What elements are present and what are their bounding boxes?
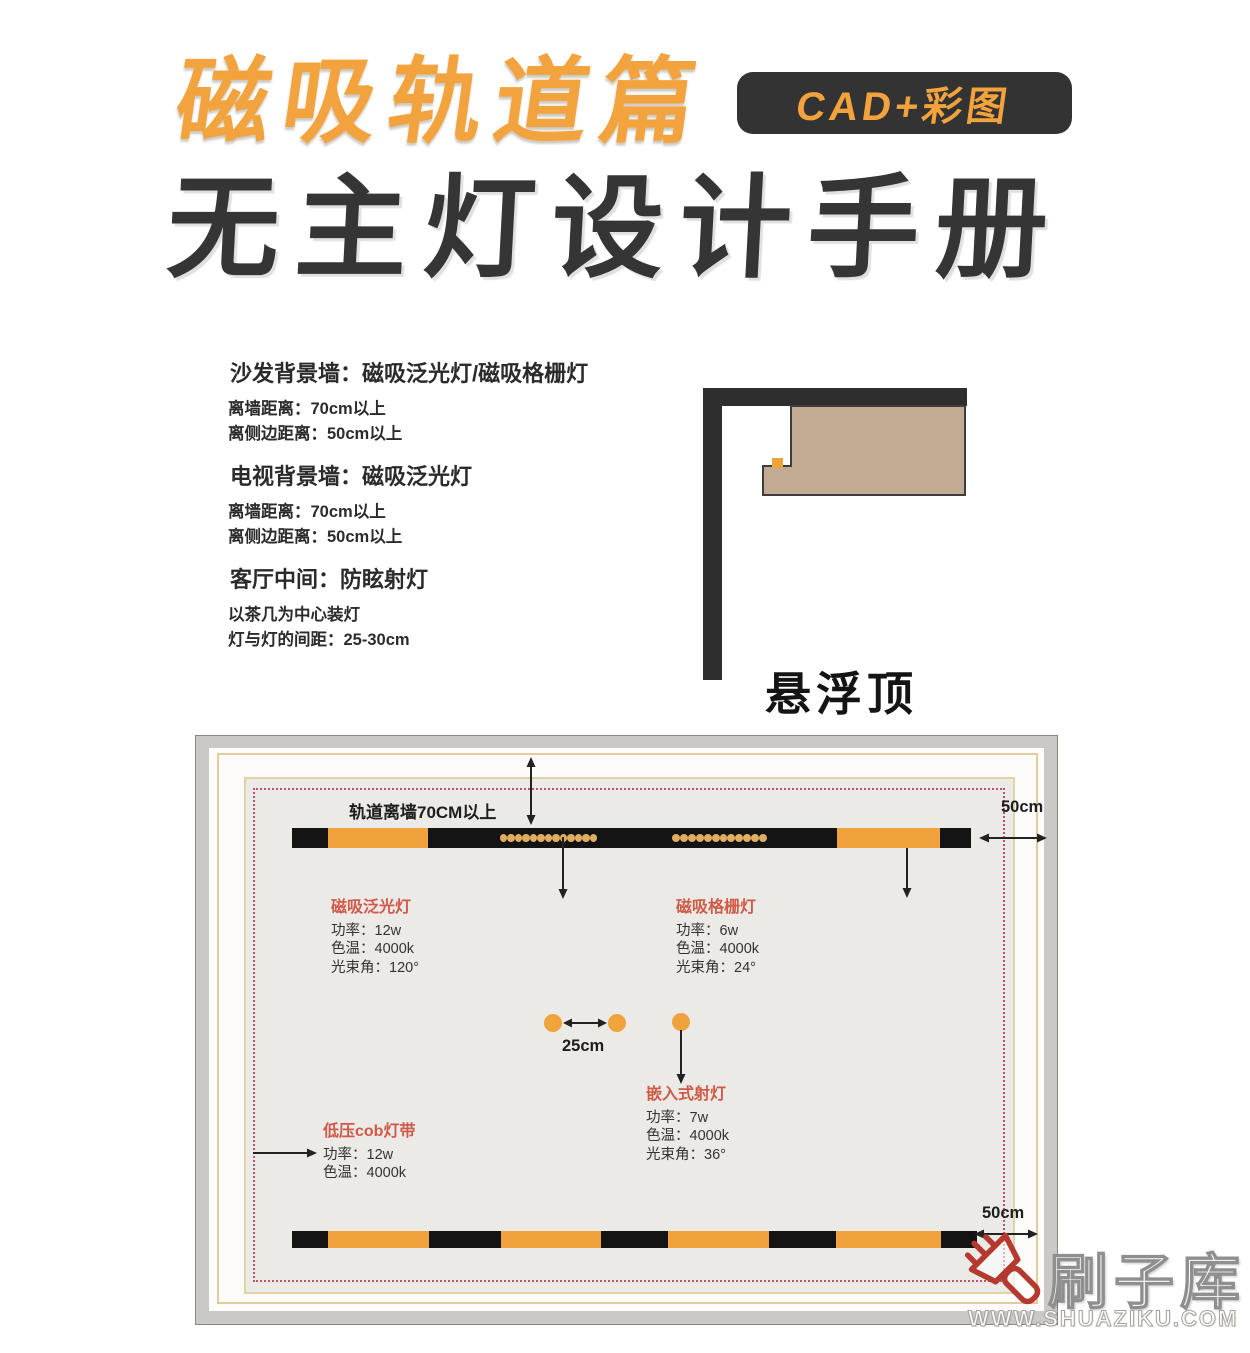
track-light-marker xyxy=(772,458,783,468)
cob-spec: 低压cob灯带 功率：12w 色温：4000k xyxy=(323,1123,415,1183)
track-segment-black xyxy=(428,828,837,848)
grille-dot xyxy=(515,834,522,842)
recessed-pointer-arrow xyxy=(674,1030,688,1084)
grille-dot xyxy=(575,834,582,842)
floodlight-spec-title: 磁吸泛光灯 xyxy=(331,899,419,918)
spec-line: 光束角：24° xyxy=(676,959,759,978)
grille-dot xyxy=(696,834,704,842)
track-segment-black xyxy=(429,1231,501,1248)
track-segment-black xyxy=(292,828,328,848)
grille-dot xyxy=(500,834,507,842)
track-segment-black xyxy=(769,1231,836,1248)
note-title: 客厅中间：防眩射灯 xyxy=(230,562,428,594)
suspended-ceiling-shape xyxy=(755,400,975,510)
spec-line: 色温：4000k xyxy=(646,1127,729,1146)
note-line: 离侧边距离：50cm以上 xyxy=(228,525,472,550)
side-distance-top-arrow xyxy=(979,830,1047,846)
grille-dot xyxy=(680,834,688,842)
note-title: 沙发背景墙：磁吸泛光灯/磁吸格栅灯 xyxy=(230,356,588,388)
grille-light-dots xyxy=(497,828,600,848)
watermark-url: WWW.SHUAZIKU.COM xyxy=(968,1306,1238,1332)
recessed-spec: 嵌入式射灯 功率：7w 色温：4000k 光束角：36° xyxy=(646,1086,729,1164)
track-segment-orange xyxy=(836,1231,941,1248)
track-segment-black xyxy=(292,1231,328,1248)
spot-spacing-label: 25cm xyxy=(562,1037,604,1056)
spec-line: 功率：12w xyxy=(323,1146,415,1165)
track-segment-orange xyxy=(328,828,428,848)
grille-spec-title: 磁吸格栅灯 xyxy=(676,899,759,918)
grille-dot xyxy=(530,834,537,842)
grille-dot xyxy=(720,834,728,842)
note-line: 离墙距离：70cm以上 xyxy=(228,397,588,422)
magnetic-track-top xyxy=(292,828,971,848)
cad-badge: CAD+彩图 xyxy=(737,72,1072,134)
spec-line: 光束角：36° xyxy=(646,1146,729,1165)
cob-pointer-arrow xyxy=(253,1146,317,1160)
brush-logo-icon xyxy=(962,1226,1054,1318)
note-line: 离侧边距离：50cm以上 xyxy=(228,422,588,447)
grille-dot xyxy=(582,834,589,842)
note-title: 电视背景墙：磁吸泛光灯 xyxy=(230,459,472,491)
grille-dot xyxy=(537,834,544,842)
ceiling-label: 悬浮顶 xyxy=(765,658,918,724)
spec-line: 色温：4000k xyxy=(331,940,419,959)
side-distance-top-label: 50cm xyxy=(1001,798,1043,817)
recessed-spotlight-marker xyxy=(608,1014,626,1032)
spot-spacing-arrow xyxy=(563,1015,607,1031)
grille-dot xyxy=(704,834,712,842)
grille-dot xyxy=(507,834,514,842)
track-segment-orange xyxy=(668,1231,769,1248)
track-segment-orange xyxy=(501,1231,601,1248)
grille-dot xyxy=(688,834,696,842)
track-segment-orange xyxy=(837,828,940,848)
spec-line: 功率：12w xyxy=(331,922,419,941)
magnetic-track-bottom xyxy=(292,1231,977,1248)
recessed-spec-title: 嵌入式射灯 xyxy=(646,1086,729,1105)
note-line: 以茶几为中心装灯 xyxy=(228,603,428,628)
track-segment-black xyxy=(940,828,971,848)
cob-spec-title: 低压cob灯带 xyxy=(323,1123,415,1142)
note-tv-wall: 电视背景墙：磁吸泛光灯 离墙距离：70cm以上 离侧边距离：50cm以上 xyxy=(228,459,472,550)
wall xyxy=(703,388,722,680)
note-sofa-wall: 沙发背景墙：磁吸泛光灯/磁吸格栅灯 离墙距离：70cm以上 离侧边距离：50cm… xyxy=(228,356,588,447)
grille-dot xyxy=(751,834,759,842)
grille-dot xyxy=(759,834,767,842)
wall-distance-note: 轨道离墙70CM以上 xyxy=(349,798,496,823)
spec-line: 光束角：120° xyxy=(331,959,419,978)
cad-badge-label: CAD+彩图 xyxy=(793,74,1015,132)
handbook-page: 磁吸轨道篇 CAD+彩图 无主灯设计手册 沙发背景墙：磁吸泛光灯/磁吸格栅灯 离… xyxy=(0,0,1250,1353)
spec-line: 功率：6w xyxy=(676,922,759,941)
main-title: 无主灯设计手册 xyxy=(164,138,1068,300)
grille-dot xyxy=(672,834,680,842)
grille-dot xyxy=(712,834,720,842)
spec-line: 色温：4000k xyxy=(323,1164,415,1183)
grille-dot xyxy=(522,834,529,842)
track-segment-orange xyxy=(328,1231,429,1248)
floor-plan-diagram: 轨道离墙70CM以上 50cm 磁吸泛光灯 功率：12w 色温：4000k 光束… xyxy=(195,735,1058,1325)
grille-light-dots xyxy=(669,828,770,848)
note-line: 灯与灯的间距：25-30cm xyxy=(228,628,428,653)
spec-line: 色温：4000k xyxy=(676,940,759,959)
grille-dot xyxy=(590,834,597,842)
note-line: 离墙距离：70cm以上 xyxy=(228,500,472,525)
grille-spec: 磁吸格栅灯 功率：6w 色温：4000k 光束角：24° xyxy=(676,899,759,977)
recessed-spotlight-marker xyxy=(544,1014,562,1032)
side-distance-bottom-label: 50cm xyxy=(982,1204,1024,1223)
recessed-spotlight-marker xyxy=(672,1013,690,1031)
spec-line: 功率：7w xyxy=(646,1109,729,1128)
floodlight-spec: 磁吸泛光灯 功率：12w 色温：4000k 光束角：120° xyxy=(331,899,419,977)
grille-dot xyxy=(545,834,552,842)
note-living-center: 客厅中间：防眩射灯 以茶几为中心装灯 灯与灯的间距：25-30cm xyxy=(228,562,428,653)
grille-dot xyxy=(743,834,751,842)
wall-distance-arrow xyxy=(524,757,538,825)
ceiling-section-diagram: 悬浮顶 xyxy=(695,380,995,730)
floodlight-pointer-arrow xyxy=(556,837,570,899)
grille-dot xyxy=(727,834,735,842)
plan-dotted-border xyxy=(253,788,1005,1282)
grille-dot xyxy=(735,834,743,842)
grille-pointer-arrow xyxy=(900,848,914,898)
track-segment-black xyxy=(601,1231,668,1248)
